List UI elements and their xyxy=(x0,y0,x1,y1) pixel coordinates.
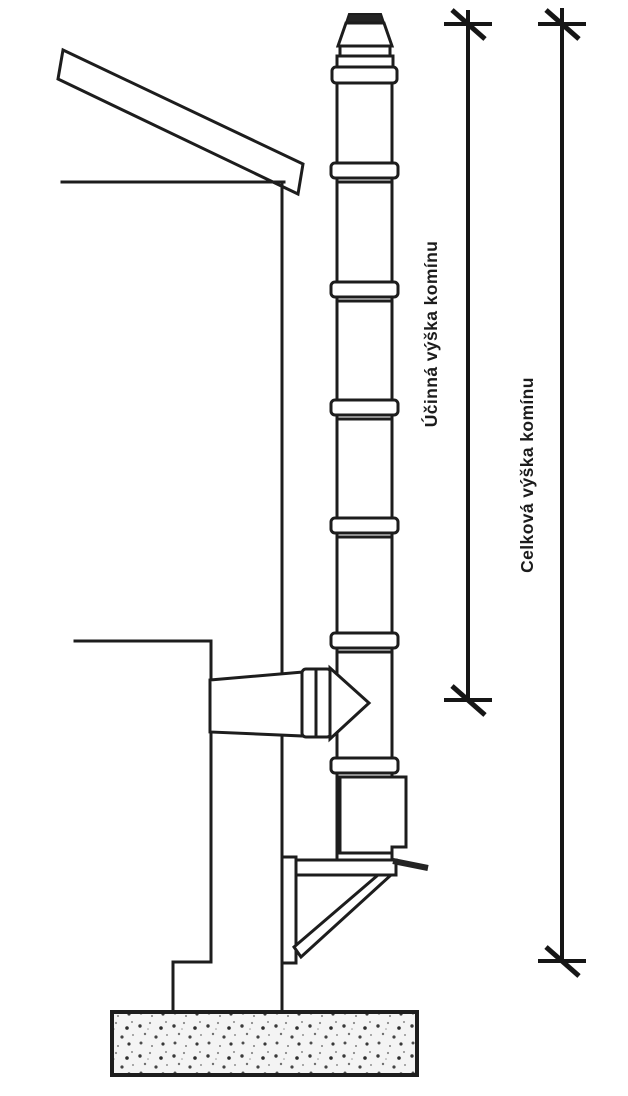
dimension-effective-height: Účinná výška komínu xyxy=(420,10,492,715)
pipe-joint xyxy=(331,282,398,301)
diagram-canvas: Účinná výška komínu Celková výška komínu xyxy=(0,0,628,1096)
plinth-step-line xyxy=(173,962,211,1013)
joint-band xyxy=(331,400,398,415)
chimney-cap-band-lower xyxy=(337,56,393,67)
chimney-pipe xyxy=(337,78,392,862)
chimney-cap-cone xyxy=(338,23,392,46)
bracket-shelf-plate xyxy=(296,860,396,875)
pipe-joint xyxy=(331,163,398,182)
roof-beam xyxy=(58,50,303,194)
joint-band xyxy=(331,282,398,297)
joint-band xyxy=(331,633,398,648)
label-effective-height: Účinná výška komínu xyxy=(420,241,441,428)
dimension-total-height: Celková výška komínu xyxy=(517,8,586,976)
door-handle xyxy=(393,861,428,868)
pipe-joint xyxy=(331,400,398,419)
pipe-joint xyxy=(331,518,398,537)
label-total-height: Celková výška komínu xyxy=(517,377,537,573)
cleanout-door xyxy=(340,777,406,853)
pipe-joint xyxy=(331,633,398,652)
chimney-installation-diagram: Účinná výška komínu Celková výška komínu xyxy=(0,0,628,1096)
joint-band xyxy=(331,163,398,178)
wall-bracket xyxy=(282,857,428,963)
bracket-diagonal-strut xyxy=(294,875,391,957)
foundation-slab xyxy=(112,1012,417,1075)
flue-pipe xyxy=(210,672,303,736)
joint-band xyxy=(331,518,398,533)
joint-band xyxy=(331,758,398,773)
pipe-joint xyxy=(331,758,398,777)
chimney-cap-collar xyxy=(332,67,397,83)
